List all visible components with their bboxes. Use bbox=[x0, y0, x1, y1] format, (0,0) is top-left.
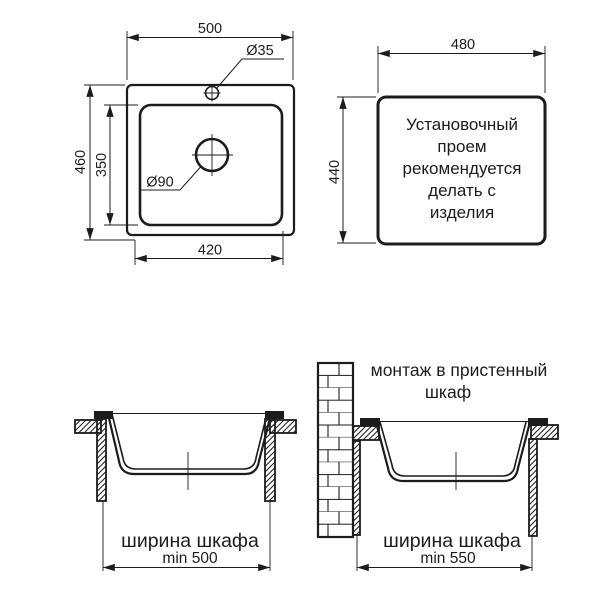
countertop-right bbox=[531, 425, 558, 439]
bowl-inner-wall bbox=[112, 414, 267, 469]
dimension-cabinet-min-500: ширина шкафа min 500 bbox=[103, 501, 270, 571]
dim-label-500: 500 bbox=[198, 21, 222, 37]
dimension-cutout-height-440: 440 bbox=[327, 97, 376, 243]
sink-flange-left bbox=[94, 411, 113, 419]
bowl-outline bbox=[140, 105, 282, 225]
technical-drawing-sheet: Ø35 Ø90 500 460 350 420 bbox=[0, 0, 600, 600]
note-line-2: проем bbox=[437, 137, 486, 156]
cabinet-section-standard: ширина шкафа min 500 bbox=[75, 411, 296, 571]
dimension-cabinet-min-550: ширина шкафа min 550 bbox=[357, 530, 532, 571]
cabinet-min-label: min 500 bbox=[162, 550, 218, 567]
dim-label-350: 350 bbox=[94, 153, 110, 177]
sink-outline bbox=[127, 85, 294, 235]
countertop-right bbox=[270, 420, 296, 433]
sink-flange-right bbox=[265, 411, 284, 419]
bowl-inner-wall bbox=[380, 422, 526, 476]
cabinet-width-label: ширина шкафа bbox=[383, 530, 521, 552]
installation-cutout-view: 480 440 Установочный проем рекомендуется… bbox=[327, 37, 545, 244]
sink-installation-drawing: Ø35 Ø90 500 460 350 420 bbox=[0, 0, 600, 600]
dimension-cutout-width-480: 480 bbox=[378, 37, 545, 93]
sink-flange-right bbox=[528, 418, 548, 426]
brick-wall bbox=[318, 363, 353, 537]
countertop-left bbox=[75, 420, 101, 433]
cabinet-min-label: min 550 bbox=[420, 550, 476, 567]
sink-top-view: Ø35 Ø90 500 460 350 420 bbox=[73, 21, 294, 265]
dim-label-480: 480 bbox=[451, 37, 475, 53]
cutout-note: Установочный проем рекомендуется делать … bbox=[403, 115, 522, 222]
cabinet-panel-right bbox=[529, 439, 537, 536]
wall-mount-title-line-2: шкаф bbox=[425, 382, 471, 402]
dimension-bowl-height-350: 350 bbox=[94, 105, 138, 225]
faucet-hole-label: Ø35 bbox=[246, 43, 273, 59]
note-line-3: рекомендуется bbox=[403, 159, 522, 178]
note-line-1: Установочный bbox=[406, 115, 518, 134]
bowl-outer-wall bbox=[108, 414, 271, 474]
note-line-4: делать с bbox=[428, 181, 496, 200]
dim-label-440: 440 bbox=[327, 160, 343, 184]
countertop-left bbox=[353, 426, 379, 440]
cabinet-panel-left bbox=[353, 441, 360, 535]
wall-mount-title-line-1: монтаж в пристенный bbox=[371, 360, 548, 380]
cabinet-section-wall: монтаж в пристенный шкаф ширина шкафа mi… bbox=[318, 360, 558, 571]
bowl-outer-wall bbox=[376, 422, 530, 481]
cabinet-width-label: ширина шкафа bbox=[121, 530, 259, 552]
dim-label-420: 420 bbox=[198, 243, 222, 259]
dim-label-460: 460 bbox=[73, 150, 89, 174]
note-line-5: изделия bbox=[430, 203, 494, 222]
drain-hole-label: Ø90 bbox=[146, 175, 173, 191]
